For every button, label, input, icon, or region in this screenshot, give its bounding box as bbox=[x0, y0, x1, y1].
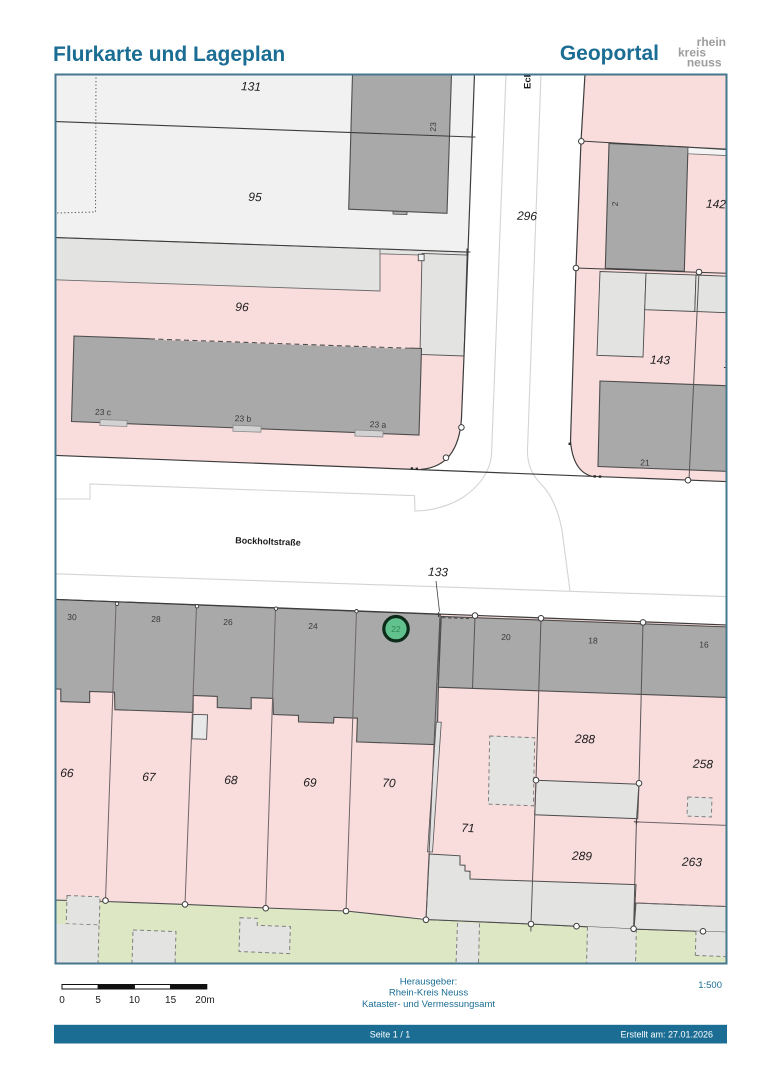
svg-text:16: 16 bbox=[699, 639, 709, 649]
svg-text:30: 30 bbox=[67, 612, 77, 622]
svg-text:10: 10 bbox=[129, 995, 141, 1006]
svg-text:20: 20 bbox=[501, 632, 511, 642]
svg-text:289: 289 bbox=[571, 849, 593, 864]
svg-text:143: 143 bbox=[650, 353, 671, 368]
svg-text:Erstellt am: 27.01.2026: Erstellt am: 27.01.2026 bbox=[620, 1030, 713, 1040]
svg-text:21: 21 bbox=[640, 457, 650, 467]
svg-text:131: 131 bbox=[241, 79, 262, 94]
svg-text:Seite 1 / 1: Seite 1 / 1 bbox=[370, 1030, 411, 1040]
svg-text:20m: 20m bbox=[195, 995, 214, 1006]
svg-text:258: 258 bbox=[692, 757, 714, 772]
svg-text:Flurkarte und Lageplan: Flurkarte und Lageplan bbox=[53, 43, 285, 66]
svg-text:2: 2 bbox=[610, 201, 620, 206]
svg-text:23 a: 23 a bbox=[370, 419, 387, 430]
svg-text:95: 95 bbox=[248, 190, 262, 205]
svg-text:5: 5 bbox=[95, 995, 101, 1006]
svg-text:23 c: 23 c bbox=[95, 407, 112, 418]
svg-text:133: 133 bbox=[428, 565, 449, 580]
svg-text:23 b: 23 b bbox=[235, 413, 252, 424]
svg-text:Kataster- und Vermessungsamt: Kataster- und Vermessungsamt bbox=[362, 999, 495, 1010]
svg-text:26: 26 bbox=[223, 617, 233, 627]
svg-text:0: 0 bbox=[59, 995, 65, 1006]
svg-text:296: 296 bbox=[516, 209, 538, 224]
svg-text:22: 22 bbox=[391, 624, 401, 634]
svg-text:neuss: neuss bbox=[687, 56, 722, 70]
svg-text:Geoportal: Geoportal bbox=[560, 42, 659, 65]
svg-text:69: 69 bbox=[303, 775, 317, 790]
svg-text:70: 70 bbox=[382, 776, 396, 791]
svg-text:67: 67 bbox=[142, 770, 157, 785]
svg-text:Herausgeber:: Herausgeber: bbox=[400, 977, 458, 988]
svg-text:18: 18 bbox=[588, 635, 598, 645]
svg-text:288: 288 bbox=[574, 732, 596, 747]
svg-text:1:500: 1:500 bbox=[698, 980, 722, 991]
svg-text:15: 15 bbox=[165, 995, 177, 1006]
svg-text:Rhein-Kreis Neuss: Rhein-Kreis Neuss bbox=[389, 988, 468, 999]
svg-text:23: 23 bbox=[428, 122, 438, 132]
svg-text:71: 71 bbox=[461, 821, 475, 836]
svg-text:Eckstraße: Eckstraße bbox=[523, 44, 534, 89]
svg-text:96: 96 bbox=[235, 300, 249, 315]
svg-text:24: 24 bbox=[308, 621, 318, 631]
svg-text:66: 66 bbox=[60, 766, 74, 781]
svg-text:68: 68 bbox=[224, 773, 238, 788]
svg-text:28: 28 bbox=[151, 614, 161, 624]
svg-text:142: 142 bbox=[706, 197, 727, 212]
svg-text:263: 263 bbox=[681, 855, 703, 870]
